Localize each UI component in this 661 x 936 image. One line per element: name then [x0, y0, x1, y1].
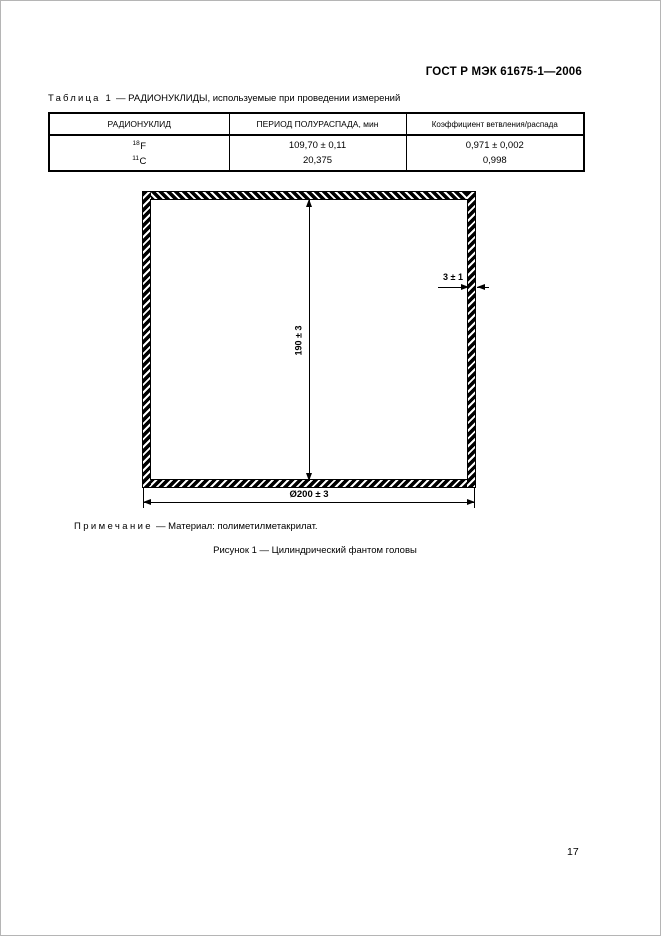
table-title-label: Таблица 1	[48, 93, 113, 104]
arrowhead-left-icon	[143, 499, 151, 505]
column-header-half-life: ПЕРИОД ПОЛУРАСПАДА, мин	[229, 113, 406, 135]
cell-half-life: 109,70 ± 0,11	[229, 135, 406, 153]
cell-branching: 0,998	[406, 153, 584, 171]
cell-branching: 0,971 ± 0,002	[406, 135, 584, 153]
table-title-text: — РАДИОНУКЛИДЫ, используемые при проведе…	[116, 93, 400, 104]
note-label: Примечание	[74, 521, 153, 532]
nuclide-symbol: F	[140, 141, 146, 152]
arrowhead-up-icon	[306, 199, 312, 207]
page-number: 17	[567, 846, 579, 858]
arrowhead-left-icon	[477, 284, 485, 290]
material-note: Примечание— Материал: полиметилметакрила…	[74, 521, 318, 532]
extension-line-left	[143, 488, 144, 508]
table-row: 18F 109,70 ± 0,11 0,971 ± 0,002	[49, 135, 584, 153]
figure-caption: Рисунок 1 — Цилиндрический фантом головы	[1, 545, 629, 556]
height-dimension-label: 190 ± 3	[294, 312, 307, 370]
note-text: — Материал: полиметилметакрилат.	[156, 521, 318, 532]
wall-dimension-label: 3 ± 1	[435, 272, 471, 282]
radionuclide-table: РАДИОНУКЛИД ПЕРИОД ПОЛУРАСПАДА, мин Коэф…	[48, 112, 585, 172]
phantom-wall-right	[467, 192, 475, 487]
height-dimension-line	[309, 199, 310, 481]
arrowhead-right-icon	[467, 499, 475, 505]
table-row: 11C 20,375 0,998	[49, 153, 584, 171]
phantom-drawing: 190 ± 3 3 ± 1 Ø200 ± 3	[142, 191, 476, 488]
arrowhead-right-icon	[461, 284, 469, 290]
column-header-branching: Коэффициент ветвления/распада	[406, 113, 584, 135]
table-header-row: РАДИОНУКЛИД ПЕРИОД ПОЛУРАСПАДА, мин Коэф…	[49, 113, 584, 135]
document-page: ГОСТ Р МЭК 61675-1—2006 Таблица 1— РАДИО…	[0, 0, 661, 936]
arrowhead-down-icon	[306, 473, 312, 481]
extension-line-right	[474, 488, 475, 508]
cell-nuclide: 11C	[49, 153, 229, 171]
diameter-dimension-label: Ø200 ± 3	[239, 489, 379, 500]
wall-dimension-leader	[438, 287, 462, 288]
diameter-dimension-line	[143, 502, 475, 503]
standard-code-header: ГОСТ Р МЭК 61675-1—2006	[426, 66, 582, 78]
table-title: Таблица 1— РАДИОНУКЛИДЫ, используемые пр…	[48, 93, 400, 104]
nuclide-mass-number: 18	[132, 140, 139, 147]
cell-half-life: 20,375	[229, 153, 406, 171]
column-header-radionuclide: РАДИОНУКЛИД	[49, 113, 229, 135]
nuclide-mass-number: 11	[132, 155, 139, 162]
cell-nuclide: 18F	[49, 135, 229, 153]
nuclide-symbol: C	[139, 156, 146, 167]
